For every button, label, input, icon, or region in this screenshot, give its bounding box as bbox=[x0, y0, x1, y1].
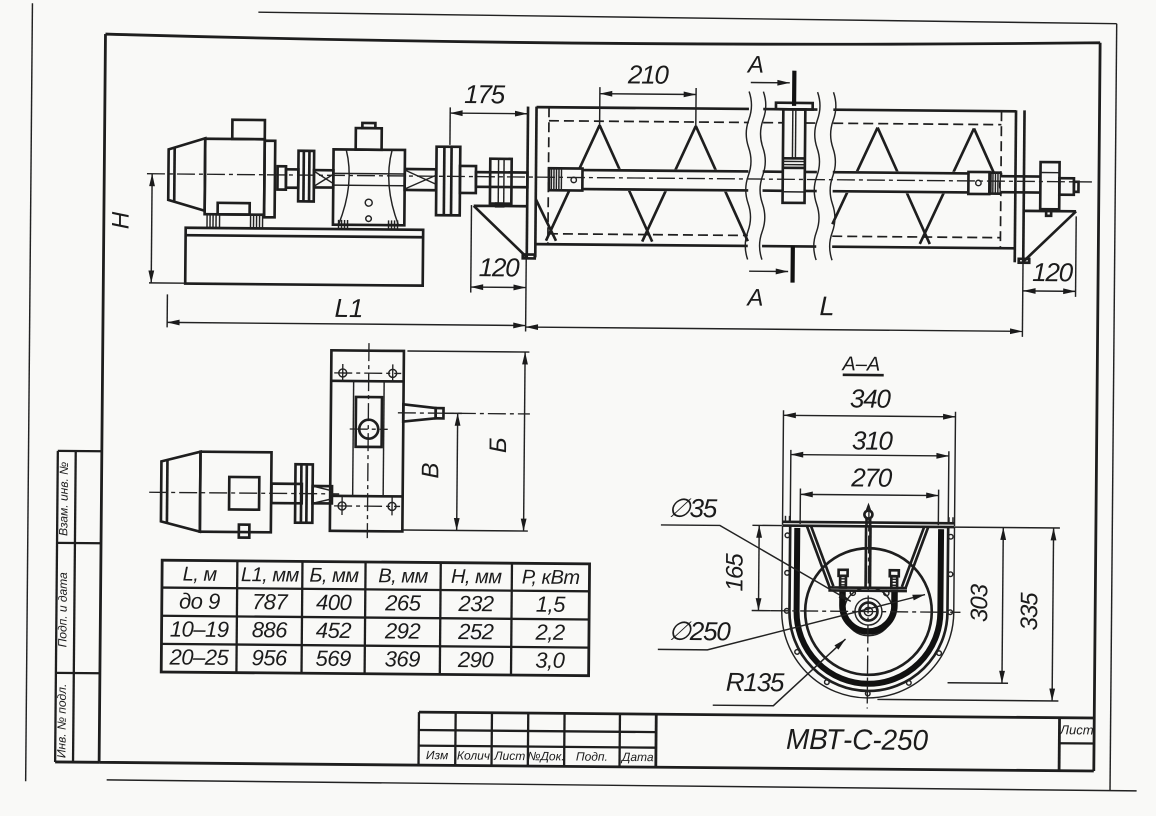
svg-text:В, мм: В, мм bbox=[378, 565, 428, 587]
svg-text:Подп. и дата: Подп. и дата bbox=[55, 572, 70, 648]
svg-text:340: 340 bbox=[850, 383, 892, 413]
svg-text:400: 400 bbox=[316, 590, 353, 615]
svg-text:232: 232 bbox=[457, 591, 494, 616]
svg-text:335: 335 bbox=[1016, 592, 1043, 631]
svg-text:303: 303 bbox=[966, 583, 993, 622]
svg-text:Б: Б bbox=[485, 437, 512, 453]
svg-text:В: В bbox=[417, 462, 444, 478]
svg-text:Дата: Дата bbox=[620, 750, 654, 764]
svg-text:175: 175 bbox=[464, 79, 506, 109]
svg-text:290: 290 bbox=[457, 647, 495, 672]
svg-text:Изм: Изм bbox=[426, 748, 448, 762]
svg-text:886: 886 bbox=[252, 617, 289, 642]
svg-text:120: 120 bbox=[479, 252, 521, 282]
svg-text:10–19: 10–19 bbox=[170, 616, 229, 642]
svg-text:120: 120 bbox=[1032, 257, 1074, 287]
svg-text:Взам. инв. №: Взам. инв. № bbox=[56, 462, 71, 536]
svg-text:Н: Н bbox=[107, 211, 134, 229]
svg-text:МВТ-С-250: МВТ-С-250 bbox=[786, 724, 928, 757]
svg-text:Р, кВт: Р, кВт bbox=[522, 567, 580, 590]
svg-text:∅250: ∅250 bbox=[668, 616, 731, 647]
svg-text:R135: R135 bbox=[726, 667, 785, 698]
svg-text:L, м: L, м bbox=[183, 564, 218, 586]
svg-text:3,0: 3,0 bbox=[535, 648, 566, 673]
svg-text:∅35: ∅35 bbox=[668, 493, 718, 523]
svg-text:L1: L1 bbox=[334, 293, 363, 323]
svg-text:Б, мм: Б, мм bbox=[309, 565, 359, 587]
svg-text:Инв. № подл.: Инв. № подл. bbox=[54, 684, 69, 759]
svg-text:452: 452 bbox=[316, 618, 352, 643]
svg-text:Подп.: Подп. bbox=[576, 749, 608, 763]
svg-text:L: L bbox=[819, 291, 834, 321]
svg-text:А–А: А–А bbox=[841, 353, 880, 375]
svg-text:Лист: Лист bbox=[493, 749, 525, 763]
svg-text:А: А bbox=[745, 284, 763, 311]
svg-text:956: 956 bbox=[251, 645, 288, 670]
svg-text:292: 292 bbox=[384, 618, 421, 643]
svg-text:L1, мм: L1, мм bbox=[241, 564, 300, 587]
svg-text:210: 210 bbox=[627, 59, 670, 89]
svg-text:20–25: 20–25 bbox=[168, 644, 229, 670]
svg-text:Колич: Колич bbox=[457, 748, 490, 762]
svg-text:Н, мм: Н, мм bbox=[451, 566, 502, 588]
svg-text:А: А bbox=[746, 51, 764, 78]
svg-text:369: 369 bbox=[385, 646, 421, 671]
svg-text:Лист: Лист bbox=[1059, 722, 1094, 737]
svg-text:252: 252 bbox=[457, 619, 494, 644]
svg-text:до 9: до 9 bbox=[179, 589, 220, 614]
svg-text:№Док.: №Док. bbox=[527, 749, 564, 763]
svg-text:2,2: 2,2 bbox=[535, 620, 566, 645]
svg-text:270: 270 bbox=[850, 462, 893, 492]
svg-text:569: 569 bbox=[316, 646, 352, 671]
svg-text:265: 265 bbox=[384, 590, 422, 615]
svg-text:310: 310 bbox=[852, 425, 894, 455]
svg-text:787: 787 bbox=[252, 589, 289, 614]
svg-text:1,5: 1,5 bbox=[536, 592, 567, 617]
svg-text:165: 165 bbox=[721, 553, 748, 592]
